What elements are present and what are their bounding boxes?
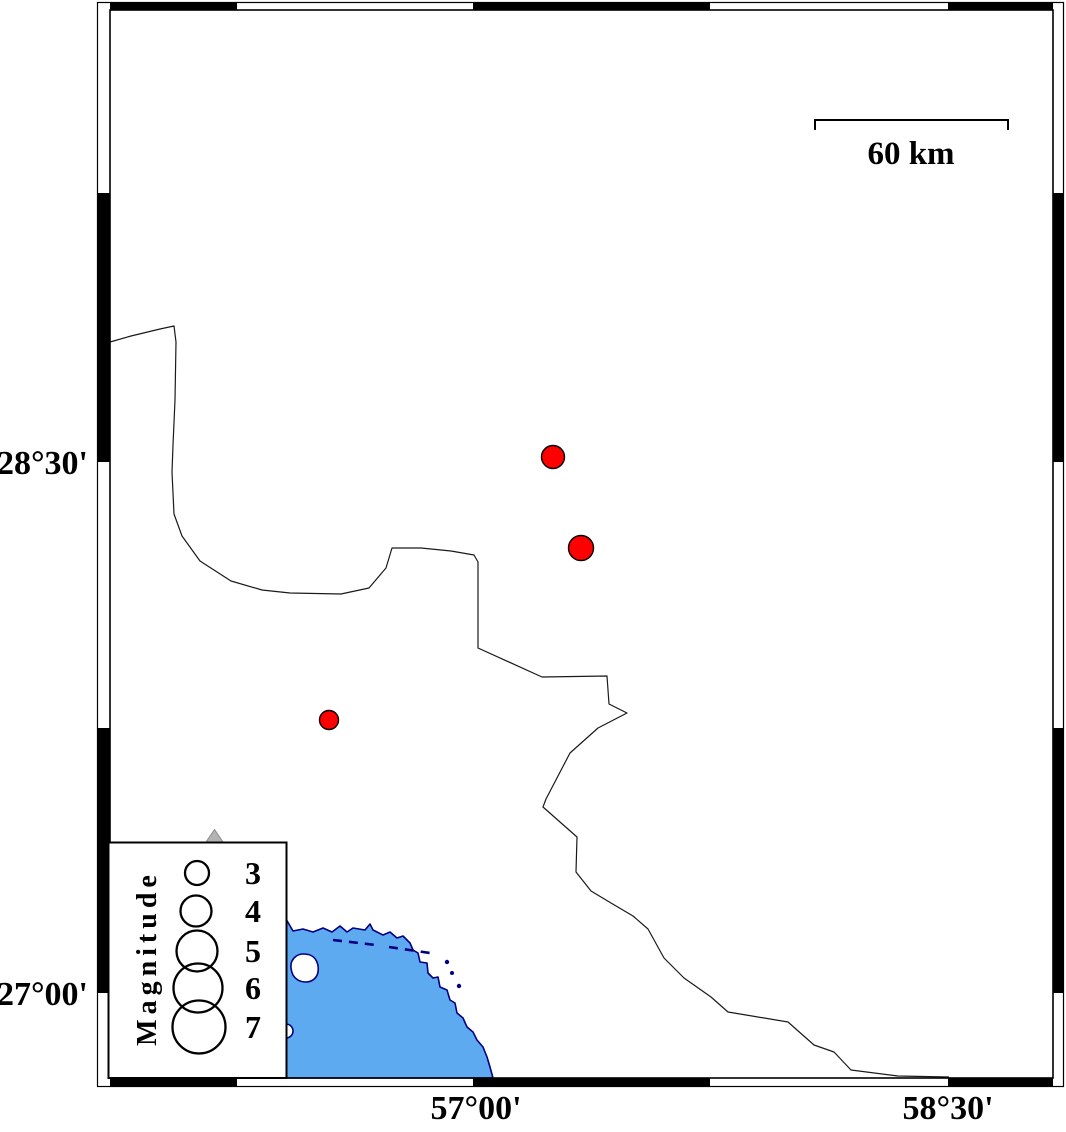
frame-seg-top-3	[948, 3, 1053, 11]
legend-title: Magnitude	[132, 870, 163, 1046]
epicenter-dot	[320, 711, 339, 730]
legend-label-m7: 7	[245, 1009, 261, 1045]
frame-seg-right-2	[1053, 728, 1064, 993]
frame-seg-bottom-1	[110, 1078, 237, 1087]
lon-label-57-00: 57°00'	[430, 1090, 521, 1127]
islet-dot	[457, 984, 461, 988]
frame-seg-top-1	[110, 3, 237, 11]
island-shape	[291, 954, 318, 982]
lat-label-27-00: 27°00'	[0, 976, 88, 1013]
frame-seg-left-1	[98, 193, 111, 462]
legend-label-m5: 5	[245, 933, 261, 969]
scale-bar-label: 60 km	[867, 136, 954, 172]
frame-seg-right-1	[1053, 193, 1064, 462]
islet-dot	[445, 960, 449, 964]
frame-seg-bottom-3	[948, 1078, 1053, 1087]
legend-label-m3: 3	[245, 855, 261, 891]
legend-labels-group: 34567	[245, 855, 261, 1045]
legend-label-m4: 4	[245, 893, 261, 929]
legend-label-m6: 6	[245, 970, 261, 1006]
lon-label-58-30: 58°30'	[902, 1090, 993, 1127]
frame-seg-top-2	[473, 3, 710, 11]
epicenter-dot	[542, 446, 565, 469]
magnitude-legend: Magnitude 34567	[109, 843, 287, 1079]
lat-label-28-30: 28°30'	[0, 445, 88, 482]
seismicity-map-figure: 60 km 28°30' 27°00' 57°00' 58°30' Magnit…	[0, 0, 1066, 1127]
frame-seg-bottom-2	[473, 1078, 710, 1087]
epicenter-dot	[569, 536, 594, 561]
islet-dot	[450, 971, 454, 975]
